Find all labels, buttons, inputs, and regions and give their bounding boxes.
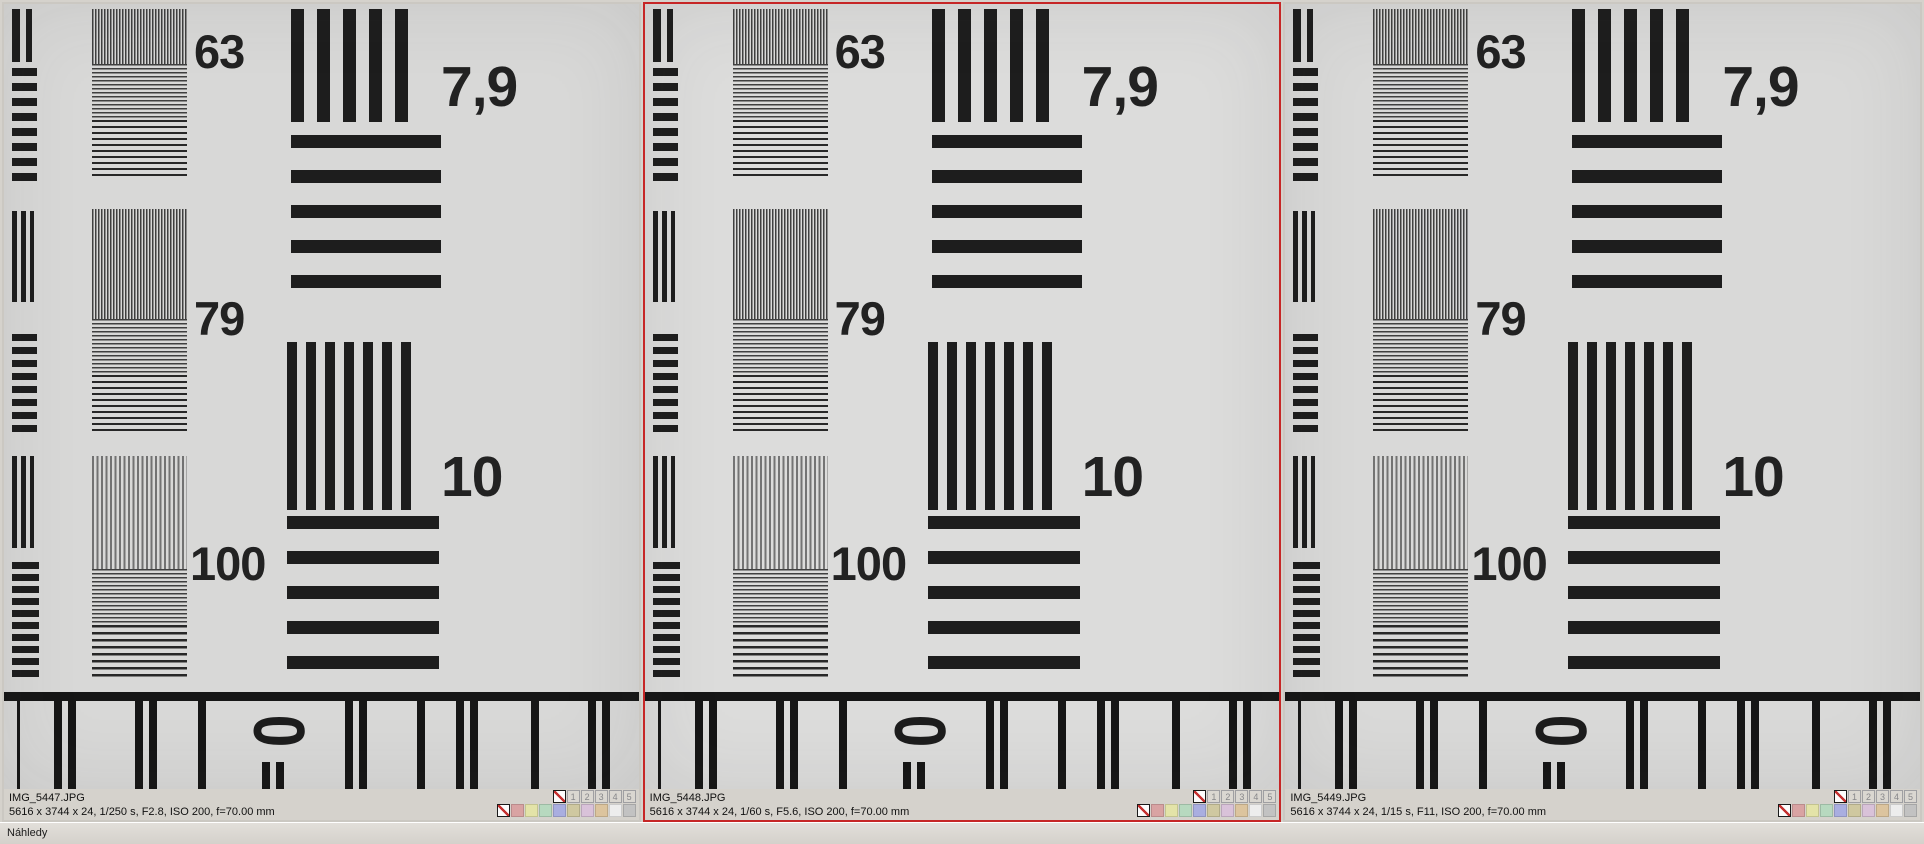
chart-label-79: 79 [835,295,885,342]
chart-fine-pattern [733,209,828,319]
color-label-swatch-3[interactable] [1179,804,1192,817]
image-panel-3[interactable]: 63 79 100 7,9 10 0 IMG_5449.JPG 5616 x 3… [1283,2,1922,822]
chart-fine-pattern [733,569,828,625]
image-panel-2-selected[interactable]: 63 79 100 7,9 10 0 IMG_5448.JPG 5616 x 3… [643,2,1282,822]
ruler-tick [470,701,478,789]
ruler-tick [1000,701,1008,789]
chart-fine-pattern [733,375,828,432]
chart-ruler-line [4,692,639,701]
chart-ruler-zero: 0 [1531,704,1589,758]
color-label-swatch-6[interactable] [1862,804,1875,817]
chart-left-dash-group [12,68,37,181]
ruler-tick [839,701,847,789]
chart-fine-pattern [733,120,828,176]
chart-ruler-zero: 0 [891,704,949,758]
chart-ruler-zero-tick [903,762,911,789]
rating-4-button[interactable]: 4 [609,790,622,803]
chart-label-7-9: 7,9 [1722,59,1798,116]
chart-bar-group-vertical [291,9,408,122]
color-label-row [1137,804,1276,817]
chart-bar-group-horizontal [287,516,439,669]
chart-label-100: 100 [831,540,906,587]
color-label-row [497,804,636,817]
chart-bar-group-vertical [1568,342,1692,510]
chart-left-dash-group [12,562,39,681]
chart-ruler-ticks [4,701,639,789]
rating-none-button[interactable] [553,790,566,803]
chart-left-dash-group [1293,562,1320,681]
color-label-swatch-8[interactable] [1249,804,1262,817]
chart-ruler-zero: 0 [250,704,308,758]
chart-fine-pattern [92,625,187,681]
chart-label-10: 10 [441,449,502,506]
chart-left-vbar-group [1293,9,1313,62]
image-panel-1[interactable]: 63 79 100 7,9 10 0 IMG_5447.JPG 5616 x 3… [2,2,641,822]
ruler-tick [588,701,596,789]
ruler-tick [1869,701,1877,789]
chart-left-vbar-group [12,211,34,302]
color-label-swatch-4[interactable] [553,804,566,817]
ruler-tick [1698,701,1706,789]
chart-left-dash-group [1293,334,1318,432]
ruler-tick [1751,701,1759,789]
chart-label-10: 10 [1082,449,1143,506]
rating-4-button[interactable]: 4 [1890,790,1903,803]
color-label-swatch-2[interactable] [525,804,538,817]
chart-left-vbar-group [653,9,673,62]
color-label-swatch-7[interactable] [595,804,608,817]
chart-ruler-zero-tick [917,762,925,789]
color-label-swatch-5[interactable] [1848,804,1861,817]
ruler-tick [602,701,610,789]
ruler-tick [68,701,76,789]
chart-bar-group-vertical [932,9,1049,122]
chart-fine-pattern [1373,319,1468,375]
color-label-none-button[interactable] [1137,804,1150,817]
chart-label-7-9: 7,9 [1082,59,1158,116]
resolution-test-chart: 63 79 100 7,9 10 0 [4,4,639,789]
color-label-swatch-8[interactable] [1890,804,1903,817]
chart-bar-group-vertical [1572,9,1689,122]
color-label-swatch-6[interactable] [581,804,594,817]
color-label-swatch-9[interactable] [623,804,636,817]
chart-fine-pattern [92,120,187,176]
image-info-bar-1: IMG_5447.JPG 5616 x 3744 x 24, 1/250 s, … [4,789,639,820]
color-label-swatch-2[interactable] [1806,804,1819,817]
rating-5-button[interactable]: 5 [1263,790,1276,803]
chart-left-vbar-group [653,456,675,548]
chart-left-vbar-group [1293,456,1315,548]
ruler-tick [1058,701,1066,789]
color-label-row [1778,804,1917,817]
chart-fine-pattern [733,456,828,569]
chart-fine-pattern [92,64,187,120]
ruler-tick [198,701,206,789]
star-rating-row: 12345 [553,790,636,803]
color-label-swatch-8[interactable] [609,804,622,817]
chart-fine-pattern [92,9,187,64]
chart-left-vbar-group [12,456,34,548]
chart-bar-group-horizontal [932,135,1082,288]
ruler-tick [776,701,784,789]
chart-label-79: 79 [194,295,244,342]
rating-none-button[interactable] [1834,790,1847,803]
chart-label-79: 79 [1475,295,1525,342]
rating-5-button[interactable]: 5 [1904,790,1917,803]
color-label-swatch-7[interactable] [1235,804,1248,817]
ruler-tick [417,701,425,789]
chart-fine-pattern [92,375,187,432]
color-label-none-button[interactable] [497,804,510,817]
chart-ruler-zero-glyph: 0 [883,715,956,748]
chart-fine-pattern [1373,209,1468,319]
chart-fine-pattern [1373,120,1468,176]
chart-ruler-zero-glyph: 0 [243,715,316,748]
ruler-tick [531,701,539,789]
chart-fine-pattern [733,319,828,375]
chart-ruler-ticks [1285,701,1920,789]
chart-left-dash-group [653,562,680,681]
chart-left-dash-group [1293,68,1318,181]
ruler-tick [1298,701,1301,789]
ruler-tick [17,701,20,789]
chart-ruler-line [1285,692,1920,701]
color-label-swatch-3[interactable] [539,804,552,817]
ruler-tick [695,701,703,789]
rating-5-button[interactable]: 5 [623,790,636,803]
ruler-tick [1172,701,1180,789]
color-label-swatch-1[interactable] [1151,804,1164,817]
chart-ruler-zero-tick [262,762,270,789]
chart-fine-pattern [92,456,187,569]
chart-fine-pattern [92,569,187,625]
ruler-tick [658,701,661,789]
chart-left-vbar-group [1293,211,1315,302]
chart-ruler-zero-tick [1557,762,1565,789]
photo-compare-window: 63 79 100 7,9 10 0 IMG_5447.JPG 5616 x 3… [0,0,1924,844]
ruler-tick [1640,701,1648,789]
ruler-tick [1479,701,1487,789]
chart-ruler-line [645,692,1280,701]
status-text: Náhledy [7,827,47,839]
chart-ruler-zero-tick [276,762,284,789]
ruler-tick [456,701,464,789]
color-label-swatch-6[interactable] [1221,804,1234,817]
chart-left-vbar-group [653,211,675,302]
chart-fine-pattern [733,625,828,681]
ruler-tick [709,701,717,789]
chart-fine-pattern [1373,625,1468,681]
ruler-tick [1416,701,1424,789]
ruler-tick [1243,701,1251,789]
resolution-test-chart: 63 79 100 7,9 10 0 [1285,4,1920,789]
chart-label-63: 63 [1475,28,1525,75]
rating-3-button[interactable]: 3 [1235,790,1248,803]
ruler-tick [1349,701,1357,789]
ruler-tick [986,701,994,789]
ruler-tick [54,701,62,789]
chart-fine-pattern [92,319,187,375]
chart-ruler-ticks [645,701,1280,789]
chart-fine-pattern [1373,64,1468,120]
color-label-swatch-4[interactable] [1834,804,1847,817]
ruler-tick [135,701,143,789]
image-info-bar-3: IMG_5449.JPG 5616 x 3744 x 24, 1/15 s, F… [1285,789,1920,820]
color-label-swatch-1[interactable] [1792,804,1805,817]
chart-label-7-9: 7,9 [441,59,517,116]
color-label-swatch-5[interactable] [567,804,580,817]
color-label-swatch-5[interactable] [1207,804,1220,817]
chart-label-100: 100 [1471,540,1546,587]
chart-label-63: 63 [835,28,885,75]
chart-left-dash-group [653,68,678,181]
color-label-swatch-9[interactable] [1263,804,1276,817]
color-label-swatch-1[interactable] [511,804,524,817]
chart-left-vbar-group [12,9,32,62]
ruler-tick [359,701,367,789]
star-rating-row: 12345 [1834,790,1917,803]
ruler-tick [1229,701,1237,789]
rating-3-button[interactable]: 3 [1876,790,1889,803]
ruler-tick [1097,701,1105,789]
ruler-tick [1626,701,1634,789]
chart-fine-pattern [1373,375,1468,432]
chart-fine-pattern [1373,456,1468,569]
rating-4-button[interactable]: 4 [1249,790,1262,803]
color-label-swatch-9[interactable] [1904,804,1917,817]
rating-3-button[interactable]: 3 [595,790,608,803]
rating-controls: 12345 [497,790,636,818]
chart-ruler-zero-glyph: 0 [1524,715,1597,748]
ruler-tick [1883,701,1891,789]
color-label-none-button[interactable] [1778,804,1791,817]
chart-bar-group-horizontal [1568,516,1720,669]
ruler-tick [149,701,157,789]
chart-label-63: 63 [194,28,244,75]
ruler-tick [1111,701,1119,789]
rating-1-button[interactable]: 1 [567,790,580,803]
chart-left-dash-group [12,334,37,432]
compare-area: 63 79 100 7,9 10 0 IMG_5447.JPG 5616 x 3… [0,0,1924,822]
chart-bar-group-horizontal [1572,135,1722,288]
rating-none-button[interactable] [1193,790,1206,803]
image-info-bar-2: IMG_5448.JPG 5616 x 3744 x 24, 1/60 s, F… [645,789,1280,820]
color-label-swatch-2[interactable] [1165,804,1178,817]
chart-bar-group-horizontal [291,135,441,288]
ruler-tick [790,701,798,789]
chart-fine-pattern [92,209,187,319]
rating-1-button[interactable]: 1 [1207,790,1220,803]
ruler-tick [345,701,353,789]
rating-1-button[interactable]: 1 [1848,790,1861,803]
rating-controls: 12345 [1137,790,1276,818]
ruler-tick [1812,701,1820,789]
chart-bar-group-vertical [928,342,1052,510]
chart-fine-pattern [733,64,828,120]
ruler-tick [1430,701,1438,789]
chart-label-100: 100 [190,540,265,587]
color-label-swatch-3[interactable] [1820,804,1833,817]
chart-fine-pattern [1373,569,1468,625]
photo-preview-3[interactable]: 63 79 100 7,9 10 0 [1285,4,1920,789]
star-rating-row: 12345 [1193,790,1276,803]
photo-preview-2[interactable]: 63 79 100 7,9 10 0 [645,4,1280,789]
photo-preview-1[interactable]: 63 79 100 7,9 10 0 [4,4,639,789]
chart-ruler-zero-tick [1543,762,1551,789]
rating-controls: 12345 [1778,790,1917,818]
chart-fine-pattern [1373,9,1468,64]
resolution-test-chart: 63 79 100 7,9 10 0 [645,4,1280,789]
chart-bar-group-horizontal [928,516,1080,669]
chart-fine-pattern [733,9,828,64]
chart-label-10: 10 [1722,449,1783,506]
rating-2-button[interactable]: 2 [1862,790,1875,803]
ruler-tick [1737,701,1745,789]
status-bar: Náhledy [0,822,1924,844]
color-label-swatch-7[interactable] [1876,804,1889,817]
rating-2-button[interactable]: 2 [1221,790,1234,803]
chart-bar-group-vertical [287,342,411,510]
ruler-tick [1335,701,1343,789]
color-label-swatch-4[interactable] [1193,804,1206,817]
rating-2-button[interactable]: 2 [581,790,594,803]
chart-left-dash-group [653,334,678,432]
